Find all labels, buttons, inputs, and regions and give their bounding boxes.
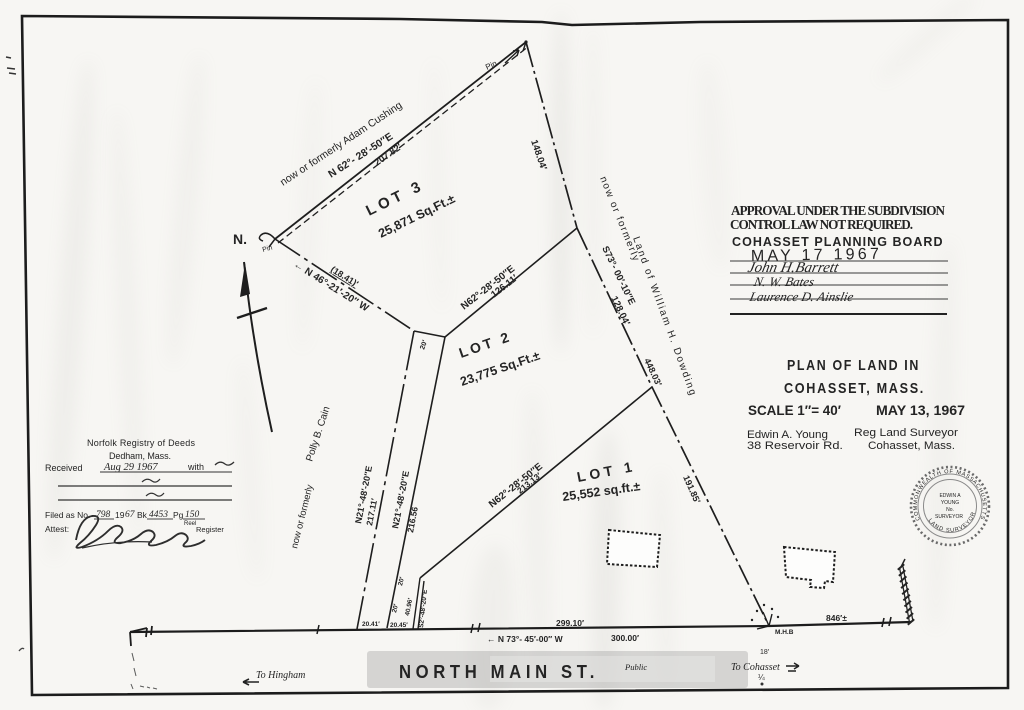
svg-text:18′: 18′ [760, 649, 770, 656]
svg-text:Cohasset, Mass.: Cohasset, Mass. [868, 440, 955, 452]
svg-text:299.10′: 299.10′ [556, 618, 584, 628]
svg-text:Land of William H. Dowding: Land of William H. Dowding [630, 235, 698, 398]
svg-text:NORTH MAIN ST.: NORTH MAIN ST. [399, 662, 599, 682]
svg-text:20′: 20′ [419, 339, 429, 351]
svg-text:40.96′: 40.96′ [404, 597, 414, 616]
svg-text:N.: N. [233, 231, 247, 247]
svg-text:← N 73°- 45′-00″ W: ← N 73°- 45′-00″ W [487, 634, 564, 644]
svg-text:COHASSET, MASS.: COHASSET, MASS. [784, 380, 925, 397]
svg-text:¼: ¼ [758, 673, 765, 682]
svg-text:Pg: Pg [173, 510, 184, 520]
svg-text:25,552 sq.ft.±: 25,552 sq.ft.± [561, 479, 641, 504]
svg-text:Reg Land Surveyor: Reg Land Surveyor [854, 427, 958, 439]
svg-text:Reel: Reel [184, 521, 196, 527]
svg-text:with: with [187, 462, 204, 472]
svg-text:Dedham, Mass.: Dedham, Mass. [109, 451, 171, 461]
svg-text:SCALE 1″= 40′: SCALE 1″= 40′ [748, 403, 841, 418]
svg-text:148.04′: 148.04′ [528, 138, 549, 172]
svg-text:Pin: Pin [262, 245, 274, 254]
svg-text:CONTROL LAW NOT REQUIRED.: CONTROL LAW NOT REQUIRED. [730, 217, 913, 232]
svg-text:To Cohasset: To Cohasset [731, 662, 780, 673]
svg-text:No.: No. [946, 507, 954, 513]
svg-text:M.H.B: M.H.B [775, 629, 794, 636]
svg-text:To Hingham: To Hingham [256, 670, 305, 681]
svg-text:now or formerly: now or formerly [289, 483, 316, 549]
svg-text:Bk: Bk [137, 510, 148, 520]
svg-text:S2°-48′-20″E: S2°-48′-20″E [417, 589, 429, 629]
svg-text:Norfolk Registry of Deeds: Norfolk Registry of Deeds [87, 438, 196, 448]
svg-text:216.56: 216.56 [405, 506, 420, 534]
svg-text:N. W. Bates: N. W. Bates [752, 274, 816, 289]
svg-text:Polly B. Cain: Polly B. Cain [304, 405, 332, 463]
svg-text:SURVEYOR: SURVEYOR [935, 514, 963, 520]
svg-text:MAY 13, 1967: MAY 13, 1967 [876, 403, 965, 418]
svg-text:38 Reservoir Rd.: 38 Reservoir Rd. [747, 440, 843, 452]
svg-text:Register: Register [196, 525, 224, 534]
svg-text:20′: 20′ [391, 603, 400, 614]
svg-text:APPROVAL UNDER THE SUBDIVISION: APPROVAL UNDER THE SUBDIVISION [731, 203, 945, 218]
svg-text:Aug 29 1967: Aug 29 1967 [103, 462, 158, 473]
svg-text:300.00′: 300.00′ [611, 633, 639, 643]
svg-text:20.41′: 20.41′ [362, 621, 380, 628]
svg-text:YOUNG: YOUNG [941, 500, 959, 506]
svg-text:Received: Received [45, 463, 83, 473]
svg-text:Filed as No.: Filed as No. [45, 510, 90, 520]
svg-text:EDWIN A: EDWIN A [939, 493, 961, 499]
svg-text:20.45′: 20.45′ [390, 622, 408, 629]
svg-text:Attest:: Attest: [45, 524, 69, 534]
svg-text:191.85′: 191.85′ [681, 474, 702, 505]
svg-text:20′: 20′ [397, 576, 406, 587]
svg-text:846′±: 846′± [826, 613, 847, 623]
svg-text:19: 19 [115, 510, 125, 520]
svg-text:Laurence D. Ainslie: Laurence D. Ainslie [747, 289, 855, 304]
svg-text:Pin: Pin [484, 59, 498, 72]
svg-text:PLAN OF LAND IN: PLAN OF LAND IN [787, 357, 920, 374]
svg-text:Public: Public [624, 662, 647, 672]
svg-text:LOT 2: LOT 2 [457, 328, 514, 361]
svg-text:67: 67 [125, 510, 136, 520]
